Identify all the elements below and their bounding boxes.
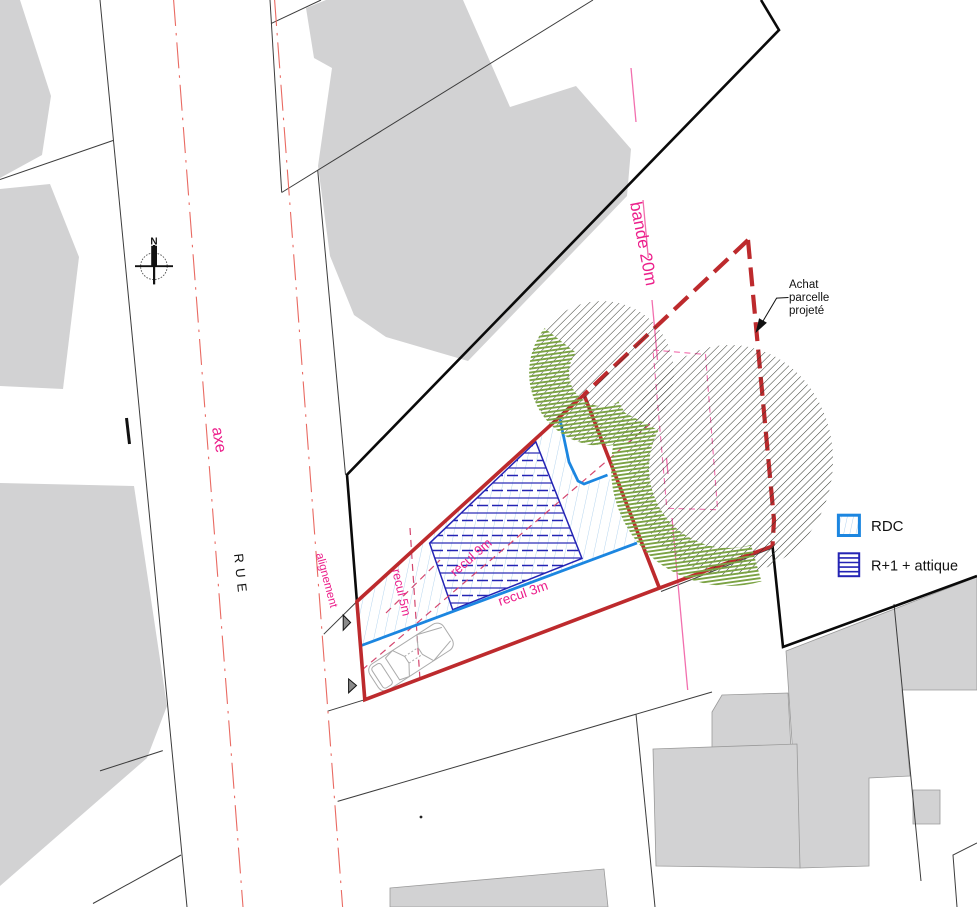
svg-text:Achat: Achat [789, 279, 819, 291]
svg-text:R+1 + attique: R+1 + attique [871, 559, 958, 575]
svg-text:projeté: projeté [789, 305, 824, 317]
svg-text:RDC: RDC [871, 518, 904, 535]
svg-text:parcelle: parcelle [789, 292, 829, 304]
svg-text:N: N [150, 237, 157, 248]
